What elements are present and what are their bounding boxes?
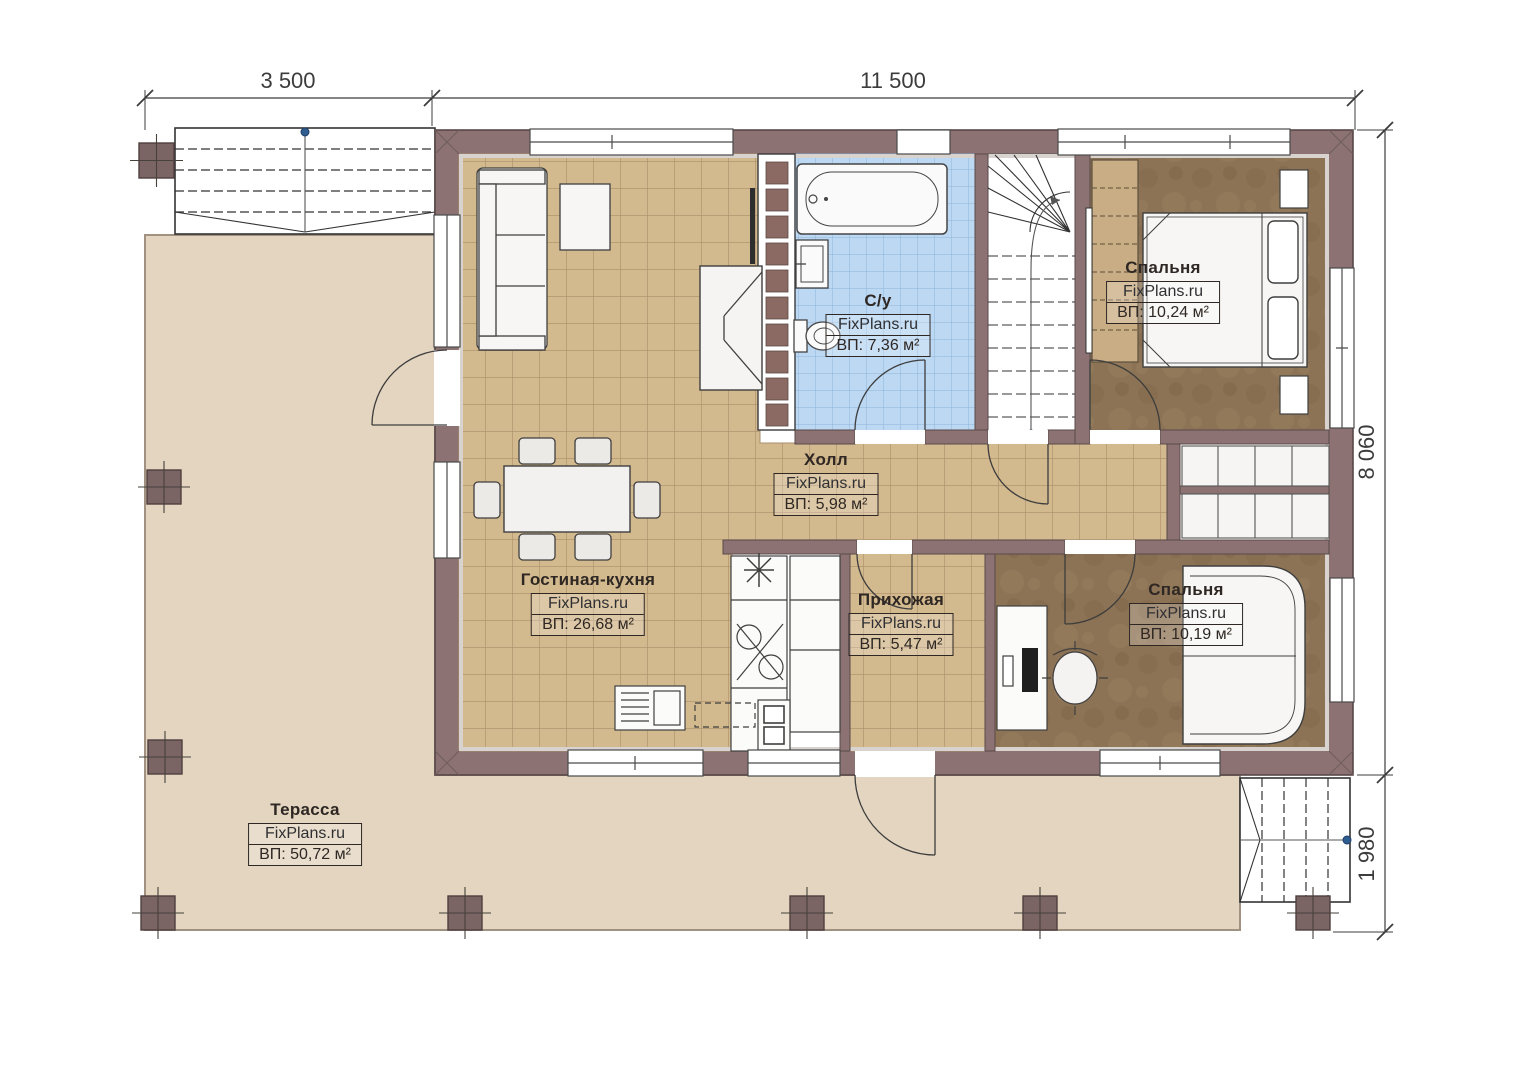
window: [568, 750, 703, 776]
floor-plan-drawing: 3 500 11 500 8 060 1 980: [0, 0, 1528, 1080]
watermark-box: FixPlans.ru ВП: 10,19 м²: [1129, 603, 1243, 646]
watermark-box: FixPlans.ru ВП: 5,98 м²: [774, 473, 879, 516]
dim-right-porch: 1 980: [1354, 826, 1379, 881]
entry-door-opening: [855, 751, 935, 777]
watermark-text: FixPlans.ru: [1130, 604, 1242, 625]
watermark-text: FixPlans.ru: [532, 594, 644, 615]
room-title: Гостиная-кухня: [521, 570, 656, 590]
chimney-block: [897, 130, 950, 154]
window: [1330, 268, 1354, 428]
tv: [750, 188, 755, 264]
coffee-table: [560, 184, 610, 250]
watermark-box: FixPlans.ru ВП: 10,24 м²: [1106, 281, 1220, 324]
desk: [997, 606, 1047, 730]
nightstand: [1280, 376, 1308, 414]
room-title: Спальня: [1129, 580, 1243, 600]
terrace-door-opening: [434, 350, 460, 426]
sofa: [477, 168, 547, 350]
dim-right-house: 8 060: [1354, 424, 1379, 479]
watermark-text: FixPlans.ru: [850, 614, 953, 635]
window: [748, 750, 840, 776]
dim-top-left: 3 500: [260, 68, 315, 93]
floor-plan-page: 3 500 11 500 8 060 1 980 С/у FixPlans.ru…: [0, 0, 1528, 1080]
window: [434, 215, 460, 347]
room-label-bedroom2: Спальня FixPlans.ru ВП: 10,19 м²: [1129, 580, 1243, 646]
room-area: ВП: 50,72 м²: [249, 845, 361, 865]
watermark-text: FixPlans.ru: [827, 315, 930, 336]
mirror-panel: [1086, 208, 1092, 353]
oven-unit: [758, 700, 790, 750]
terrace-stairs-top-left: [175, 128, 435, 234]
room-title: Спальня: [1106, 258, 1220, 278]
computer: [1022, 648, 1038, 692]
window: [1100, 750, 1220, 776]
room-area: ВП: 10,24 м²: [1107, 303, 1219, 323]
room-title: Холл: [774, 450, 879, 470]
watermark-text: FixPlans.ru: [775, 474, 878, 495]
room-area: ВП: 10,19 м²: [1130, 625, 1242, 645]
window: [530, 129, 733, 155]
room-label-terrace: Терасса FixPlans.ru ВП: 50,72 м²: [248, 800, 362, 866]
room-label-living: Гостиная-кухня FixPlans.ru ВП: 26,68 м²: [521, 570, 656, 636]
watermark-box: FixPlans.ru ВП: 5,47 м²: [849, 613, 954, 656]
fireplace: [700, 266, 762, 390]
watermark-box: FixPlans.ru ВП: 26,68 м²: [531, 593, 645, 636]
room-title: Терасса: [248, 800, 362, 820]
window: [1058, 129, 1290, 155]
entry-cabinet: [790, 556, 840, 732]
room-area: ВП: 26,68 м²: [532, 615, 644, 635]
room-label-entry: Прихожая FixPlans.ru ВП: 5,47 м²: [849, 590, 954, 656]
window: [434, 462, 460, 558]
nightstand: [1280, 170, 1308, 208]
room-area: ВП: 5,98 м²: [775, 495, 878, 515]
watermark-text: FixPlans.ru: [1107, 282, 1219, 303]
dim-top-span: 11 500: [860, 68, 926, 93]
room-title: Прихожая: [849, 590, 954, 610]
pillow: [1268, 221, 1298, 283]
room-label-bedroom1: Спальня FixPlans.ru ВП: 10,24 м²: [1106, 258, 1220, 324]
fridge-unit: [615, 686, 685, 730]
room-label-hall: Холл FixPlans.ru ВП: 5,98 м²: [774, 450, 879, 516]
watermark-box: FixPlans.ru ВП: 7,36 м²: [826, 314, 931, 357]
watermark-text: FixPlans.ru: [249, 824, 361, 845]
pillow: [1268, 297, 1298, 359]
bathtub: [797, 164, 947, 234]
window: [1330, 578, 1354, 702]
room-label-bathroom: С/у FixPlans.ru ВП: 7,36 м²: [826, 291, 931, 357]
entry-steps-bottom-right: [1240, 778, 1351, 902]
watermark-box: FixPlans.ru ВП: 50,72 м²: [248, 823, 362, 866]
room-area: ВП: 5,47 м²: [850, 635, 953, 655]
tiled-partition: [758, 154, 795, 430]
room-title: С/у: [826, 291, 931, 311]
bathroom-sink: [796, 240, 828, 288]
room-area: ВП: 7,36 м²: [827, 336, 930, 356]
dining-table: [504, 466, 630, 532]
